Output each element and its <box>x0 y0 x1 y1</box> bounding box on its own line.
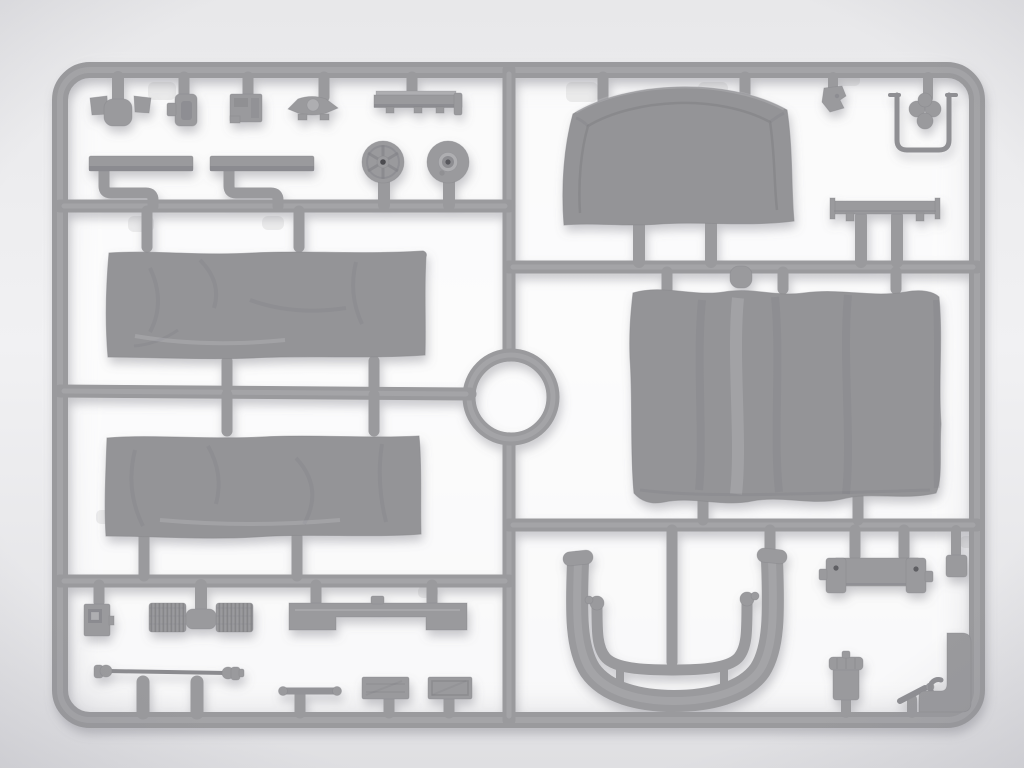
vignette <box>0 0 1024 768</box>
photo-stage: Overhead studio photograph of a light-gr… <box>0 0 1024 768</box>
sprue-photo: Overhead studio photograph of a light-gr… <box>0 0 1024 768</box>
